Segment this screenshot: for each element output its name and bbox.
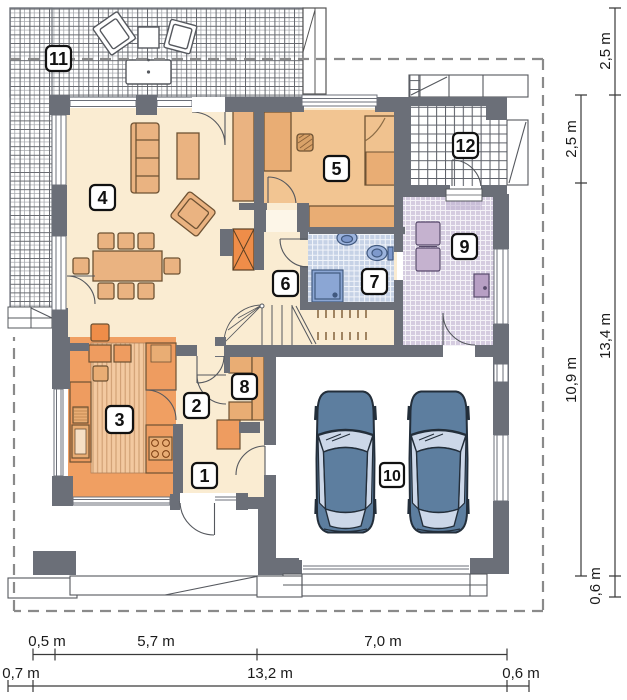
svg-text:8: 8 — [239, 377, 249, 397]
svg-text:13,2 m: 13,2 m — [247, 665, 293, 682]
svg-text:4: 4 — [97, 188, 107, 208]
svg-text:3: 3 — [114, 410, 124, 430]
svg-text:0,5 m: 0,5 m — [28, 633, 66, 650]
svg-text:13,4 m: 13,4 m — [597, 313, 614, 359]
svg-text:10: 10 — [383, 468, 401, 485]
svg-text:0,7 m: 0,7 m — [2, 665, 40, 682]
svg-text:2,5 m: 2,5 m — [563, 120, 580, 158]
svg-text:0,6 m: 0,6 m — [502, 665, 540, 682]
svg-text:7: 7 — [369, 272, 379, 292]
svg-text:12: 12 — [455, 136, 475, 156]
svg-text:9: 9 — [459, 237, 469, 257]
svg-text:5,7 m: 5,7 m — [137, 633, 175, 650]
svg-text:0,6 m: 0,6 m — [587, 567, 604, 605]
svg-text:11: 11 — [49, 49, 68, 69]
svg-text:10,9 m: 10,9 m — [563, 357, 580, 403]
svg-text:5: 5 — [331, 159, 341, 179]
svg-text:2,5 m: 2,5 m — [597, 32, 614, 70]
svg-text:1: 1 — [199, 466, 209, 486]
svg-text:7,0 m: 7,0 m — [364, 633, 402, 650]
svg-text:6: 6 — [280, 274, 290, 294]
svg-text:2: 2 — [191, 396, 201, 416]
